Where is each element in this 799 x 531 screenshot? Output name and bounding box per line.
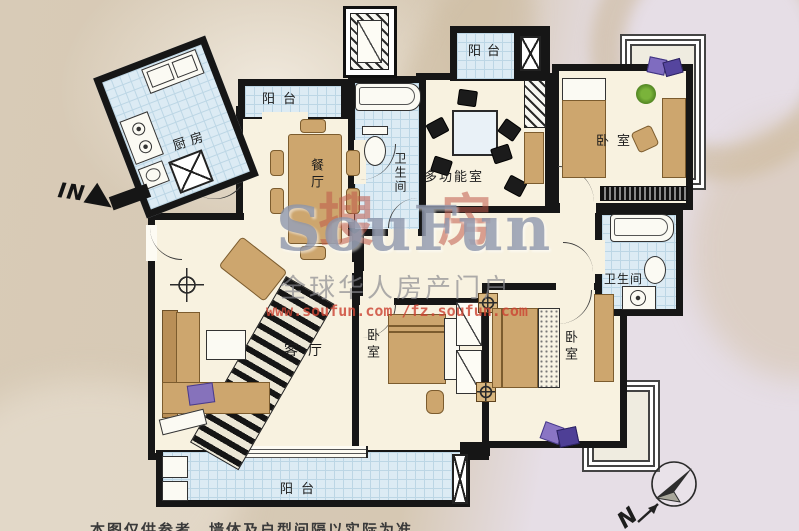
basin-bowl	[144, 166, 163, 184]
kitchen-sink-counter	[141, 49, 204, 94]
label-bedroom-bottom-right: 卧室	[560, 330, 579, 364]
bed-blanket	[492, 308, 538, 388]
kitchen-stove	[119, 111, 163, 165]
label-bedroom-top-right: 卧室	[596, 130, 638, 149]
bathtub	[610, 214, 674, 242]
bathtub	[355, 83, 421, 111]
dining-chair	[300, 119, 326, 133]
plant	[636, 84, 656, 104]
label-balcony-top: 阳台	[468, 40, 506, 59]
disclaimer-text: 本图仅供参考，墙体及户型间隔以实际为准	[90, 519, 413, 531]
top-structure-door	[357, 20, 382, 63]
sofa-seat-bottom	[162, 382, 270, 414]
desk	[594, 294, 614, 382]
dining-chair	[270, 188, 284, 214]
dining-chair	[300, 246, 326, 260]
dining-chair	[346, 150, 360, 176]
bed-blanket	[388, 314, 446, 384]
utility-shaft	[514, 28, 548, 80]
compass-n-label: N	[613, 503, 643, 530]
sofa-cushion	[187, 382, 216, 405]
door-gap-bedroom-top-right	[560, 201, 596, 213]
sliding-door-balcony-bottom	[238, 446, 368, 458]
label-balcony-bottom: 阳台	[280, 478, 322, 497]
top-structure-frame	[350, 13, 389, 70]
sink-bowl	[644, 256, 666, 284]
balcony-washer	[162, 456, 188, 478]
floor-plan-page: 阳台 厨房 餐厅 卫生间 多功能室 阳台 卧室 卫生间 客厅 卧室 卧室 阳台 …	[0, 0, 799, 531]
entry-arrow-icon	[83, 183, 118, 218]
stove-burner	[137, 138, 154, 155]
balcony-window-frame	[452, 454, 468, 504]
label-balcony-top-left: 阳台	[262, 88, 304, 107]
balcony-basin	[162, 481, 188, 501]
dining-chair	[346, 188, 360, 214]
coffee-table	[206, 330, 246, 360]
label-bathroom-top: 卫生间	[392, 152, 409, 194]
black-chair	[457, 89, 478, 107]
door-gap-bathroom-right	[593, 240, 605, 274]
label-multi-function: 多功能室	[424, 166, 484, 185]
dining-chair	[270, 150, 284, 176]
stool	[426, 390, 444, 414]
kitchen-sink-basin	[146, 63, 174, 87]
shaft-vent	[520, 36, 541, 71]
cabinet	[524, 132, 544, 184]
bed-pillow-area	[562, 78, 606, 102]
door-gap-bathroom-top	[388, 229, 418, 241]
bathtub-inner	[359, 87, 415, 105]
ceiling-fan-symbol	[170, 268, 204, 302]
stove-burner	[130, 121, 147, 138]
toilet-tank	[362, 126, 388, 135]
label-dining: 餐厅	[306, 158, 325, 192]
top-structure	[343, 6, 397, 78]
wardrobe	[524, 80, 546, 128]
label-living: 客厅	[284, 340, 332, 360]
washer-drum	[630, 290, 646, 306]
desk	[662, 98, 686, 178]
tv-wall	[600, 186, 688, 201]
kitchen-sink-basin	[172, 54, 199, 78]
bathtub-inner	[614, 218, 668, 236]
washing-machine	[622, 286, 656, 310]
bed-pillow-area	[538, 308, 560, 388]
toilet-bowl	[364, 136, 386, 166]
label-bathroom-right: 卫生间	[604, 270, 643, 287]
compass-icon: N	[612, 458, 722, 530]
label-bedroom-middle: 卧室	[362, 328, 381, 362]
background-swirl	[690, 120, 799, 380]
